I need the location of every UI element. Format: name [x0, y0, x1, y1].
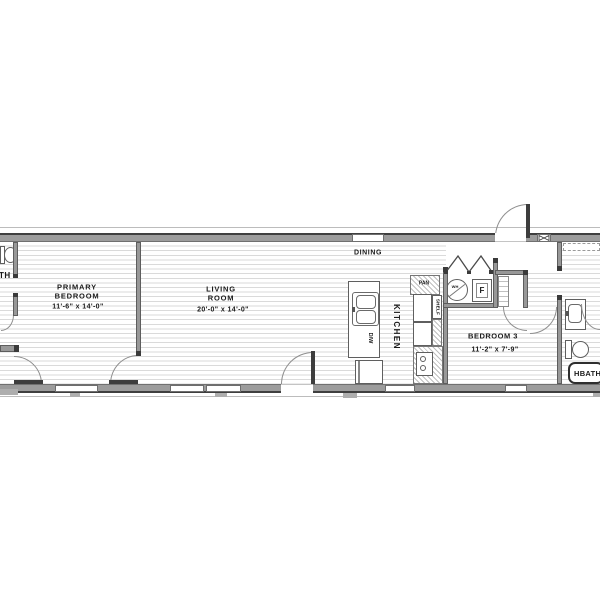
hbath-wall: [557, 295, 562, 384]
primary-bedroom-closet-door-leaf: [14, 380, 43, 384]
sink-basin-bottom: [356, 310, 376, 324]
wall-cap: [557, 266, 562, 271]
floor-plan: WH F D/W PRIMARY BEDROOM 11'-6" x 14'-0"…: [0, 0, 600, 600]
bifold-hinge: [467, 271, 471, 274]
wall-cap: [14, 345, 19, 352]
primary-bedroom-window: [55, 385, 98, 392]
water-heater-label: WH: [452, 285, 459, 289]
kitchen-east-wall: [443, 272, 448, 384]
bifold-hinge: [444, 270, 448, 274]
bedroom-living-wall: [136, 242, 141, 356]
cabinet-hatch-strip: [432, 319, 442, 346]
living-room-window-left: [170, 385, 204, 392]
vent-symbol: [537, 234, 551, 242]
roof-outline-bottom: [0, 396, 600, 397]
bowtie-vent-icon: [538, 235, 550, 241]
primary-bedroom-label-2: BEDROOM: [55, 292, 100, 300]
front-door-opening: [281, 384, 313, 393]
primary-bedroom-dims: 11'-6" x 14'-0": [52, 304, 103, 311]
wall-cap: [493, 258, 498, 263]
sink-basin-top: [356, 295, 376, 309]
wall-cap: [13, 293, 18, 297]
appliance-knob: [420, 356, 426, 362]
living-room-label-2: ROOM: [208, 294, 235, 302]
primary-bedroom-door-leaf: [109, 380, 138, 384]
living-room-dims: 20'-0" x 14'-0": [197, 307, 249, 314]
sink-faucet: [352, 307, 355, 312]
primary-bath-label-partial: TH: [0, 272, 11, 280]
dining-window: [352, 234, 384, 242]
hbath-faucet: [566, 311, 569, 316]
bedroom3-dims: 11'-2" x 7'-9": [471, 347, 518, 354]
bedroom3-closet-right-wall: [523, 270, 528, 308]
wall-cap: [13, 274, 18, 278]
wall-cap: [557, 295, 562, 300]
range-handle: [358, 361, 360, 383]
counter-lower: [413, 322, 432, 346]
pier-mark: [215, 393, 227, 397]
utility-closet-bottom-wall: [443, 303, 498, 308]
shelf-label: SHELF: [435, 299, 440, 315]
kitchen-window: [385, 385, 415, 392]
primary-bedroom-label-1: PRIMARY: [57, 283, 97, 291]
hbath-toilet-tank: [565, 340, 572, 359]
pier-mark: [593, 393, 600, 397]
front-door-leaf: [311, 351, 315, 384]
dishwasher-label: D/W: [366, 333, 372, 344]
hbath-sink: [568, 304, 582, 323]
bedroom3-label: BEDROOM 3: [468, 332, 518, 340]
hbath-label: HBATH: [574, 370, 600, 378]
wall-cap: [136, 351, 141, 356]
pier-mark: [343, 393, 357, 398]
back-door-opening: [495, 233, 526, 242]
back-door-leaf: [526, 204, 530, 238]
furnace-label: F: [480, 287, 485, 295]
kitchen-label: KITCHEN: [392, 304, 400, 350]
bifold-hinge: [489, 270, 493, 274]
living-room-window-right: [206, 385, 241, 392]
closet-shelves: [498, 276, 509, 307]
pier-mark: [0, 389, 18, 395]
wire-shelf: [563, 243, 600, 251]
pantry-label: PAN: [419, 282, 429, 287]
water-heater: [446, 279, 468, 301]
hbath-toilet-bowl: [572, 341, 589, 358]
utility-closet-right-wall: [493, 258, 498, 308]
wall-cap: [523, 270, 528, 275]
primary-bath-wall-upper: [13, 242, 18, 278]
dining-label: DINING: [354, 250, 382, 257]
pier-mark: [70, 393, 80, 397]
living-room-label-1: LIVING: [206, 285, 236, 293]
bedroom3-window: [505, 385, 527, 392]
appliance-knob: [420, 365, 426, 371]
counter-upper: [413, 294, 432, 322]
